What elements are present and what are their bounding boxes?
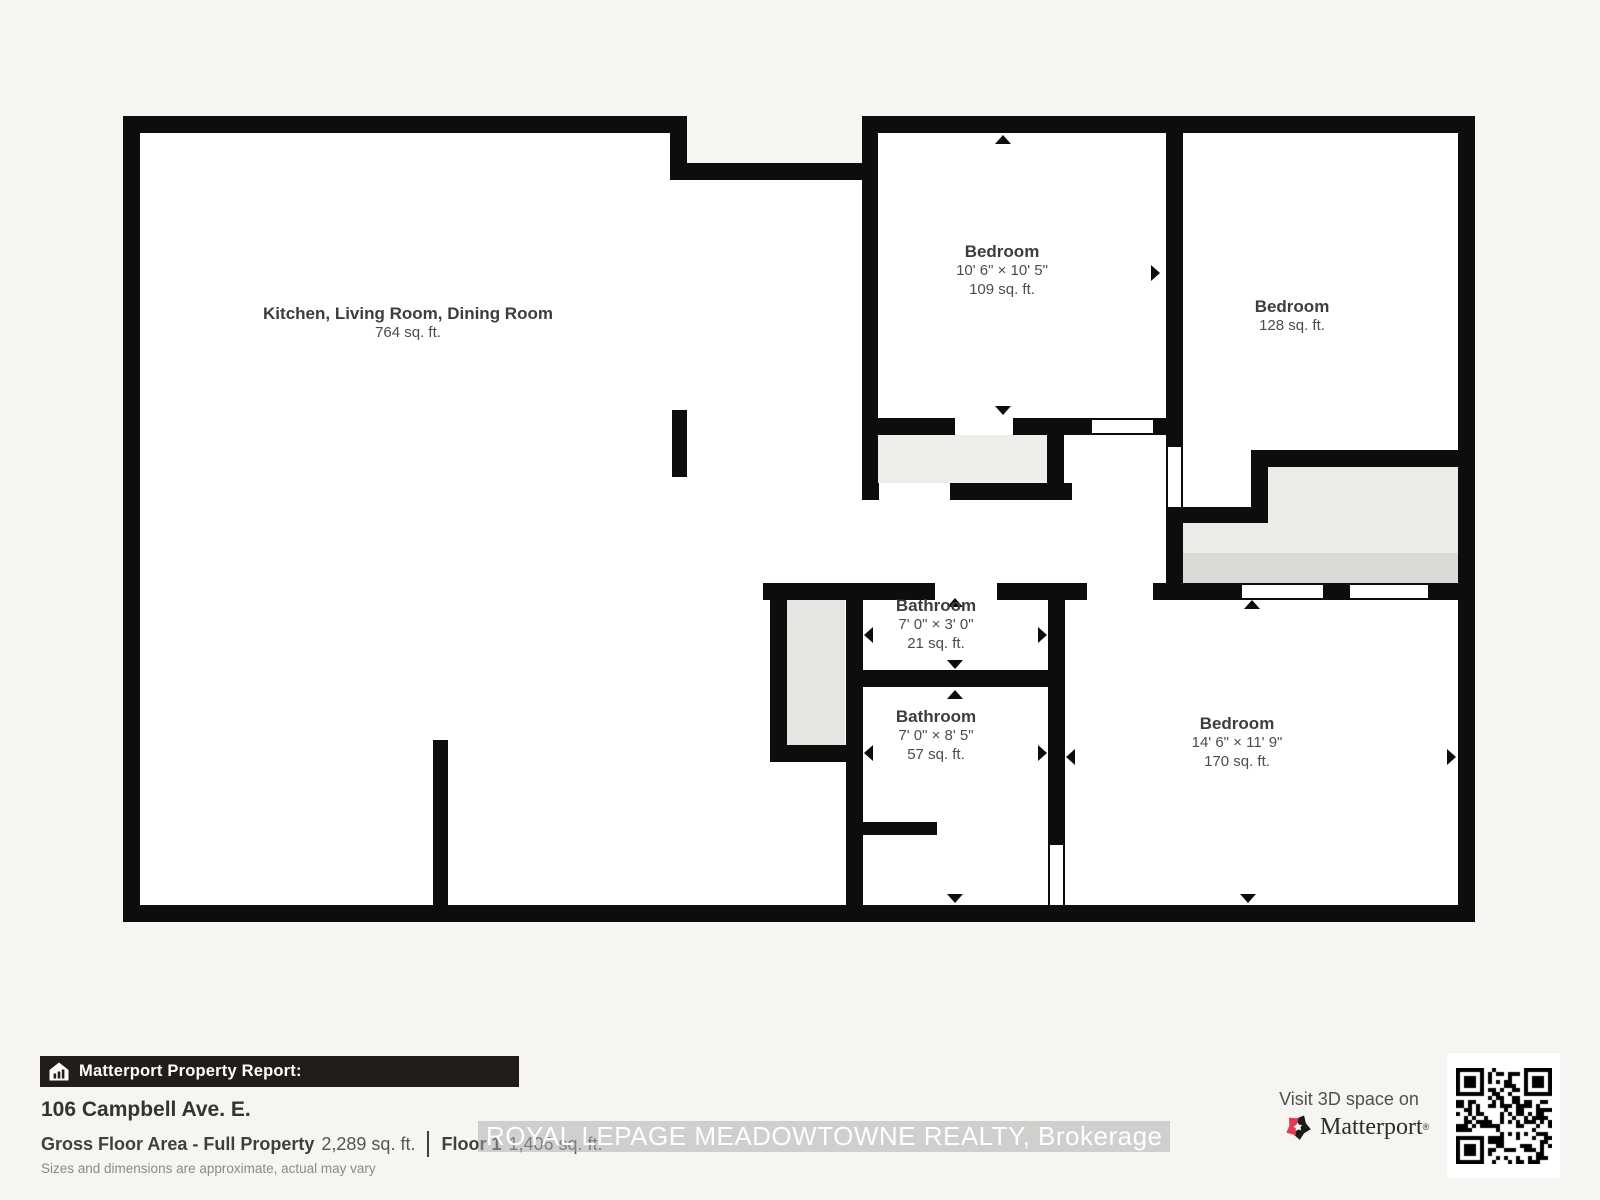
wall-bathroom-divider (846, 670, 1065, 687)
closet-area (878, 435, 1047, 483)
matterport-pinwheel-icon (1283, 1113, 1313, 1141)
door-arrow-icon (866, 265, 875, 281)
wall-notch-vertical (670, 116, 687, 180)
room-area: 128 sq. ft. (1255, 316, 1330, 335)
room-label-bedroom-bottom-right: Bedroom 14' 6" × 11' 9" 170 sq. ft. (1192, 714, 1283, 771)
door-arrow-icon (1151, 265, 1160, 281)
room-name: Bedroom (1192, 714, 1283, 733)
wall-bedroom1-bottom-b (1013, 418, 1092, 435)
room-name: Bedroom (956, 242, 1048, 261)
property-address: 106 Campbell Ave. E. (41, 1098, 251, 1122)
door-arrow-icon (947, 894, 963, 903)
door-arrow-icon (1038, 627, 1047, 643)
divider (427, 1131, 429, 1157)
room-dimensions: 7' 0" × 8' 5" (896, 726, 976, 745)
room-name: Bedroom (1255, 297, 1330, 316)
wall-kitchen-lower (433, 740, 448, 905)
gross-floor-area-value: 2,289 sq. ft. (321, 1134, 415, 1155)
wall-hall-bottom-c (1153, 583, 1242, 600)
door-gap-bedroom1 (955, 418, 1013, 435)
stairs-area-mid (1183, 523, 1458, 553)
brokerage-watermark: ROYAL LEPAGE MEADOWTOWNE REALTY, Brokera… (478, 1121, 1170, 1152)
door-arrow-icon (1244, 600, 1260, 609)
wall-bathrooms-left (846, 583, 863, 905)
room-dimensions: 10' 6" × 10' 5" (956, 261, 1048, 280)
room-name: Bathroom (896, 596, 976, 615)
room-name: Bathroom (896, 707, 976, 726)
disclaimer-text: Sizes and dimensions are approximate, ac… (41, 1161, 376, 1176)
house-chart-icon (49, 1062, 69, 1081)
wall-closet-bottom-b (950, 483, 1072, 500)
matterport-report-banner: Matterport Property Report: (40, 1056, 519, 1087)
wall-hall-bottom-e (1428, 583, 1458, 600)
wall-bedroom1-left (862, 133, 878, 492)
wall-outer-left (123, 116, 140, 922)
room-dimensions: 7' 0" × 3' 0" (896, 615, 976, 634)
room-dimensions: 14' 6" × 11' 9" (1192, 733, 1283, 752)
door-arrow-icon (1038, 745, 1047, 761)
linen-closet-area (787, 600, 845, 745)
visit-3d-text: Visit 3D space on (1256, 1089, 1442, 1110)
gross-floor-area-label: Gross Floor Area - Full Property (41, 1134, 314, 1155)
banner-title: Matterport Property Report: (79, 1062, 302, 1081)
wall-notch-horizontal (687, 163, 878, 180)
room-area: 109 sq. ft. (956, 280, 1048, 299)
door-arrow-icon (1447, 749, 1456, 765)
door-arrow-icon (947, 660, 963, 669)
window-stairs-b (1350, 583, 1428, 600)
wall-bedroom-divider-upper (1166, 133, 1183, 447)
room-area: 21 sq. ft. (896, 634, 976, 653)
door-gap-closet (879, 483, 950, 500)
window-hall-divider (1166, 447, 1183, 507)
wall-linen-left (770, 583, 787, 762)
wall-outer-top-left (123, 116, 687, 133)
room-label-bathroom-small: Bathroom 7' 0" × 3' 0" 21 sq. ft. (896, 596, 976, 653)
wall-bathrooms-right (1048, 583, 1065, 845)
room-area: 170 sq. ft. (1192, 752, 1283, 771)
stairs-area-dark (1183, 553, 1458, 583)
door-arrow-icon (1066, 749, 1075, 765)
door-arrow-icon (947, 690, 963, 699)
wall-hall-bottom-b (997, 583, 1087, 600)
room-label-bedroom-top-middle: Bedroom 10' 6" × 10' 5" 109 sq. ft. (956, 242, 1048, 299)
room-area: 764 sq. ft. (263, 323, 553, 342)
wall-outer-bottom (123, 905, 1475, 922)
door-gap-hallway (1087, 583, 1153, 600)
window-bedroom1-bottom (1092, 418, 1153, 435)
door-arrow-icon (995, 406, 1011, 415)
qr-code-pattern (1456, 1068, 1552, 1164)
door-arrow-icon (995, 135, 1011, 144)
exterior-notch (687, 116, 862, 163)
wall-outer-right (1458, 116, 1475, 922)
qr-code (1447, 1053, 1560, 1178)
wall-closet-bottom-a (862, 483, 879, 500)
wall-bedroom1-bottom-c (1153, 418, 1166, 435)
wall-kitchen-stub (672, 410, 687, 477)
wall-stairs-step-horizontal (1166, 507, 1268, 523)
room-label-bedroom-top-right: Bedroom 128 sq. ft. (1255, 297, 1330, 335)
wall-bathroom2-stub (846, 822, 937, 835)
door-arrow-icon (864, 745, 873, 761)
door-arrow-icon (1240, 894, 1256, 903)
window-bathroom-bedroom (1048, 845, 1065, 905)
room-area: 57 sq. ft. (896, 745, 976, 764)
matterport-wordmark: Matterport (1320, 1114, 1423, 1141)
wall-bedroom2-bottom (1251, 450, 1458, 467)
wall-linen-bottom (770, 745, 848, 762)
wall-bedroom1-bottom-a (862, 418, 955, 435)
room-name: Kitchen, Living Room, Dining Room (263, 304, 553, 323)
door-arrow-icon (864, 627, 873, 643)
room-label-bathroom-main: Bathroom 7' 0" × 8' 5" 57 sq. ft. (896, 707, 976, 764)
room-label-kitchen: Kitchen, Living Room, Dining Room 764 sq… (263, 304, 553, 342)
wall-hall-bottom-d (1323, 583, 1350, 600)
window-stairs-a (1242, 583, 1323, 600)
matterport-floorplan-page: { "colors": { "wall": "#0d0d0d", "page_b… (0, 0, 1600, 1200)
trademark-symbol: ® (1423, 1122, 1430, 1132)
matterport-logo: Matterport ® (1283, 1113, 1429, 1141)
stairs-area-upper (1268, 467, 1458, 523)
wall-outer-top-right (862, 116, 1475, 133)
